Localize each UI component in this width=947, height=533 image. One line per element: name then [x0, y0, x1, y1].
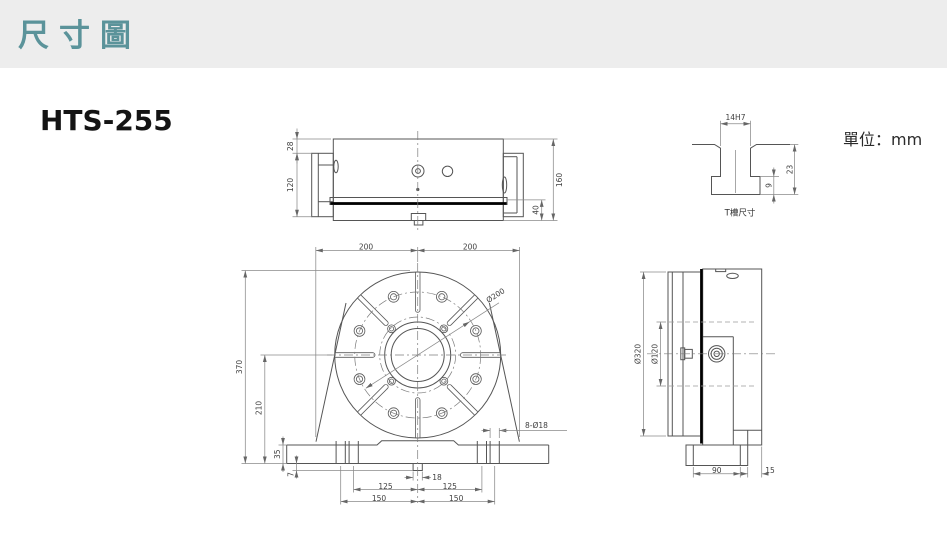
- dim-370: 370: [235, 360, 244, 375]
- dim-7: 7: [287, 472, 296, 477]
- dim-15: 15: [765, 466, 775, 475]
- dim-dia200: Ø200: [485, 286, 507, 305]
- dim-120: 120: [286, 178, 295, 193]
- dim-dia320: Ø320: [633, 344, 642, 364]
- front-view-drawing: 200 200 370 210 35 7 18 125 125 150 150 …: [235, 243, 567, 505]
- side-view-drawing: Ø320 Ø120 90 15: [633, 269, 776, 478]
- dim-200-left: 200: [359, 243, 374, 252]
- dim-150-left: 150: [372, 494, 387, 503]
- dim-18: 18: [432, 473, 442, 482]
- dim-8-dia18: 8-Ø18: [525, 421, 548, 430]
- dim-28: 28: [286, 141, 295, 151]
- dim-90: 90: [712, 466, 722, 475]
- tslot-detail-drawing: 14H7 23 9 T槽尺寸: [692, 113, 798, 219]
- dim-150-right: 150: [449, 494, 464, 503]
- dim-125-left: 125: [378, 482, 393, 491]
- dim-160: 160: [555, 173, 564, 188]
- dim-35: 35: [273, 449, 282, 459]
- dim-14h7: 14H7: [726, 113, 746, 122]
- dim-9: 9: [764, 183, 773, 188]
- dim-125-right: 125: [443, 482, 458, 491]
- dim-200-right: 200: [463, 243, 478, 252]
- page: 尺寸圖 HTS-255 單位：mm: [0, 0, 947, 533]
- tslot-label: T槽尺寸: [724, 208, 756, 219]
- dim-dia120: Ø120: [651, 344, 660, 364]
- dim-40: 40: [532, 205, 541, 215]
- dim-210: 210: [255, 401, 264, 416]
- dim-23: 23: [785, 165, 794, 175]
- top-view-drawing: 28 120 160 40: [286, 129, 564, 234]
- dimension-drawing: 28 120 160 40: [0, 0, 947, 533]
